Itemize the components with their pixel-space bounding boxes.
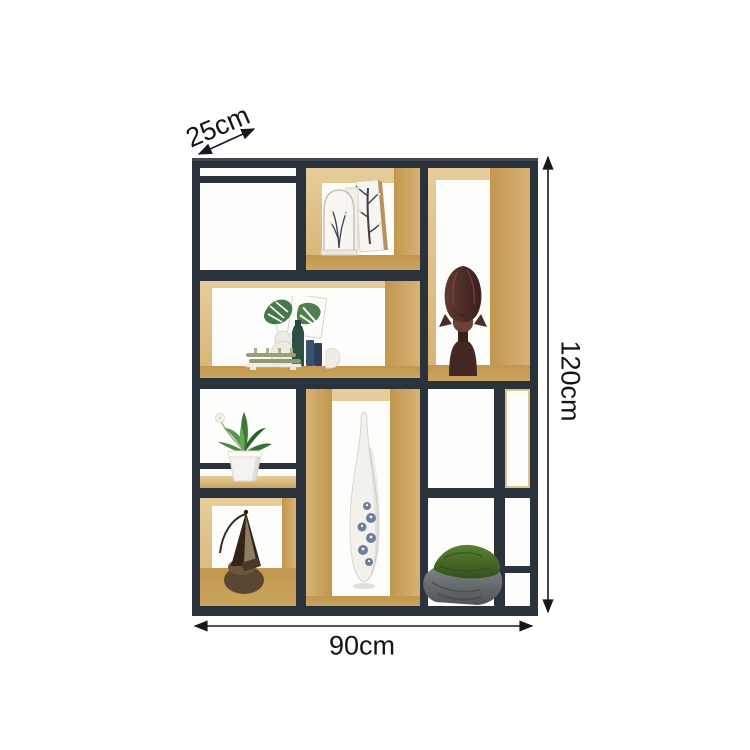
cell-top-left-open bbox=[200, 168, 296, 270]
cell-right-strip-upper bbox=[505, 389, 530, 488]
box-inner-wall bbox=[390, 389, 420, 606]
decor-potted-plant bbox=[212, 406, 278, 482]
box-floor bbox=[306, 596, 420, 606]
decor-floor-vase bbox=[340, 410, 388, 596]
back-rail bbox=[200, 176, 296, 183]
frame-top-edge bbox=[192, 158, 538, 161]
cell-right-strip-middle bbox=[505, 498, 530, 566]
product-dimension-diagram: 25cm 120cm 90cm bbox=[0, 0, 750, 750]
decor-monstera-vignette bbox=[246, 296, 342, 370]
width-dimension-label: 90cm bbox=[329, 633, 395, 660]
decor-moss-rock bbox=[418, 524, 508, 606]
box-inner-wall bbox=[385, 281, 420, 378]
height-dimension-label: 120cm bbox=[557, 340, 584, 421]
decor-abstract-sculpture bbox=[214, 508, 274, 596]
box-inner-wall bbox=[490, 168, 530, 381]
cell-right-strip-lower bbox=[505, 573, 530, 606]
cell-right-upper-open bbox=[428, 389, 494, 488]
decor-cloche bbox=[318, 178, 390, 256]
decor-african-bust bbox=[439, 264, 487, 378]
box-floor bbox=[306, 255, 420, 270]
shelf-frame bbox=[192, 158, 538, 616]
depth-dimension-label: 25cm bbox=[182, 102, 253, 153]
box-inner-wall bbox=[306, 389, 332, 606]
